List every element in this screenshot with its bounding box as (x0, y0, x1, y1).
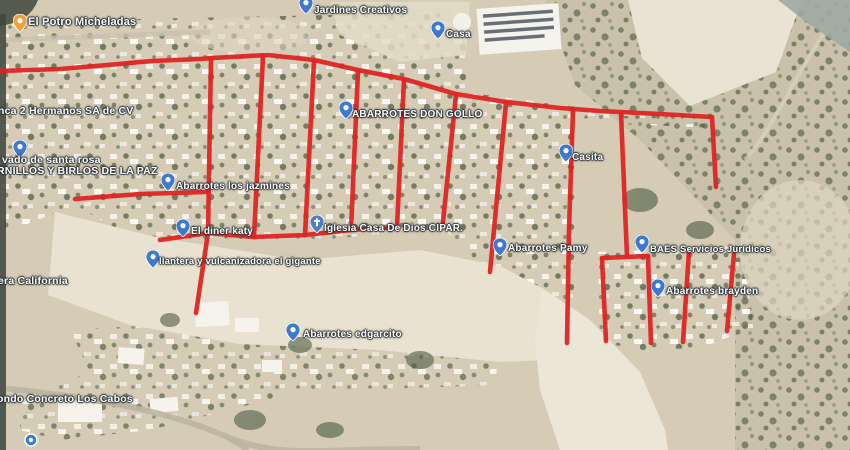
map-label-casita[interactable]: Casita (572, 152, 603, 163)
map-label-abarrotes-don-gollo[interactable]: ABARROTES DON GOLLO (352, 109, 482, 120)
place-pin-icon[interactable] (635, 235, 649, 253)
map-viewport[interactable]: El Potro MicheladasJardines CreativosCas… (0, 0, 850, 450)
map-label-abarrotes-pamy[interactable]: Abarrotes Pamy (508, 243, 588, 254)
drink-pin-icon[interactable] (13, 14, 27, 32)
place-pin-icon[interactable] (431, 21, 445, 39)
map-label-abarrotes-brayden[interactable]: Abarrotes brayden (666, 286, 758, 297)
map-label-ondo-concreto-los-cabos[interactable]: ondo Concreto Los Cabos (0, 393, 133, 405)
place-pin-icon[interactable] (161, 173, 175, 191)
map-label-casa[interactable]: Casa (446, 29, 471, 40)
map-label-abarrotes-edgarcito[interactable]: Abarrotes edgarcito (303, 329, 402, 340)
map-label-jardines-creativos[interactable]: Jardines Creativos (314, 5, 407, 16)
circle-pin-icon[interactable] (24, 433, 38, 447)
place-pin-icon[interactable] (286, 323, 300, 341)
map-label-finca-2-hermanos[interactable]: nca 2 Hermanos SA de CV (0, 105, 134, 117)
place-pin-icon[interactable] (299, 0, 313, 14)
map-label-llantera-vulcanizadora-el-gigante[interactable]: llantera y vulcanizadora el gigante (159, 256, 321, 267)
place-pin-icon[interactable] (146, 250, 160, 268)
place-pin-icon[interactable] (651, 279, 665, 297)
place-pin-icon[interactable] (559, 144, 573, 162)
church-pin-icon[interactable] (310, 215, 324, 233)
map-label-tornillos-y-birlos-de-la-paz[interactable]: RNILLOS Y BIRLOS DE LA PAZ (0, 165, 158, 177)
map-label-baes-servicios-juridicos[interactable]: BAES Servicios Jurídicos (650, 244, 771, 255)
place-pin-icon[interactable] (493, 238, 507, 256)
map-label-iglesia-casa-de-dios-cipar[interactable]: Iglesia Casa De Dios CIPAR. (324, 223, 463, 234)
map-label-el-potro-micheladas[interactable]: El Potro Micheladas (28, 16, 136, 28)
labels-layer: El Potro MicheladasJardines CreativosCas… (0, 0, 850, 450)
place-pin-icon[interactable] (339, 101, 353, 119)
map-label-era-california[interactable]: era California (0, 275, 68, 287)
map-label-el-diner-katy[interactable]: El diner katy (191, 226, 253, 237)
place-pin-icon[interactable] (176, 219, 190, 237)
map-label-abarrotes-los-jazmines[interactable]: Abarrotes los jazmines (176, 181, 290, 192)
